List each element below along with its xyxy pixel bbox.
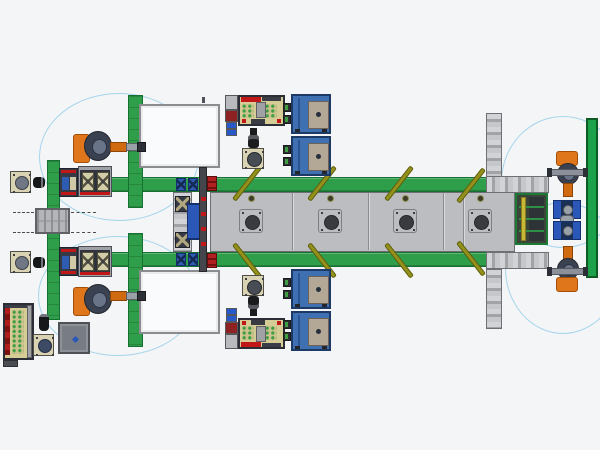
- cluster-blue-block: [62, 177, 69, 190]
- actuator-cylinder-upper: [33, 177, 45, 188]
- pallet-plate-upper-left: [10, 171, 31, 193]
- panel-mark: [242, 119, 246, 123]
- cabinet-blue-cell: [226, 122, 237, 129]
- station-hole: [399, 215, 414, 230]
- station-hole: [324, 215, 339, 230]
- pin-hole: [327, 195, 334, 202]
- cluster-red-strip: [61, 271, 76, 274]
- platform-seam: [443, 193, 445, 250]
- cabinet-red-top: [225, 110, 238, 122]
- robot-bottom-left-arm: [110, 291, 127, 301]
- platform-seam: [368, 193, 370, 250]
- machine-center-hole: [316, 287, 321, 292]
- cabinet-blue-cell: [226, 308, 237, 315]
- pole-clamp-red: [201, 197, 206, 201]
- platform-seam: [292, 193, 294, 250]
- connector-neck: [250, 128, 257, 135]
- machine-panel: [308, 276, 329, 304]
- process-machine-3: [291, 269, 331, 309]
- buffer-platform-lower: [139, 270, 220, 334]
- safety-wall-right: [586, 118, 598, 278]
- chip-grid: [265, 104, 277, 118]
- machine-connector-green: [283, 320, 291, 329]
- fixture-cluster-b-lower: [78, 246, 112, 277]
- chip-grid: [242, 326, 254, 340]
- panel-center-block: [256, 326, 266, 342]
- pole-clamp-red: [201, 227, 206, 231]
- pallet-fixture-blue: [176, 253, 186, 266]
- x-plate: [82, 172, 94, 191]
- cluster-tan-block: [70, 177, 76, 190]
- panel-mark: [277, 119, 281, 123]
- stopper-red-lower: [207, 253, 217, 268]
- cabinet-blue-cell: [226, 129, 237, 136]
- dimension-line-lower-left: [13, 232, 34, 233]
- connector-body: [248, 296, 259, 309]
- cabinet-gray-bottom: [225, 334, 238, 349]
- main-line-platform: [210, 192, 515, 252]
- panel-mark-dark: [251, 320, 265, 325]
- plate-knob: [15, 176, 29, 190]
- fixture-cluster-a-upper: [59, 168, 78, 197]
- platform-seam: [463, 193, 465, 250]
- station-plate: [393, 209, 417, 233]
- machine-connector-green: [283, 332, 291, 341]
- pole-clamp-red: [201, 242, 206, 246]
- crossbar-end: [547, 168, 552, 177]
- box-center-mark: [72, 336, 79, 343]
- station-plate: [239, 209, 263, 233]
- cluster-red-strip: [61, 249, 76, 252]
- machine-panel: [308, 143, 329, 171]
- cabinet-red-bottom: [225, 322, 238, 334]
- elevator-ladder-horizontal-top: [486, 176, 549, 193]
- pcb-panel-left-vertical: [3, 303, 34, 360]
- robot-right-bottom-crossbar: [547, 268, 588, 275]
- robot-right-bottom-base: [556, 277, 578, 292]
- robot-bottom-left-gripper: [137, 291, 146, 301]
- dimension-line-lower-right: [71, 232, 96, 233]
- connector-neck: [250, 309, 257, 316]
- cabinet-blue-cell: [226, 315, 237, 322]
- cluster-red-strip: [80, 192, 110, 195]
- fixture-lens: [247, 152, 262, 167]
- chip-grid: [12, 310, 24, 354]
- fixture-knob: [563, 205, 573, 215]
- panel-red-edge: [5, 308, 10, 355]
- equipment-box: [58, 322, 90, 354]
- robot-bottom-left-body: [84, 284, 112, 314]
- machine-connector-green: [283, 157, 291, 166]
- panel-mark: [277, 321, 281, 325]
- station-hole: [245, 215, 260, 230]
- machine-connector-green: [283, 145, 291, 154]
- factory-layout-canvas: [0, 0, 600, 450]
- chip-grid: [265, 326, 277, 340]
- machine-connector-green: [283, 278, 291, 287]
- camera-fixture-bottom: [242, 275, 264, 296]
- process-machine-2: [291, 136, 331, 176]
- robot-right-top-arm: [563, 183, 573, 197]
- guide-pole: [199, 167, 207, 272]
- cluster-red-strip: [61, 170, 76, 173]
- cable-connector-bottom: [248, 296, 259, 316]
- robot-top-left-body: [84, 131, 112, 161]
- x-plate: [97, 252, 109, 271]
- elevator-ladder-horizontal-bottom: [486, 252, 549, 269]
- conveyor-strip-bottom: [58, 252, 517, 267]
- panel-foot-plate: [3, 360, 18, 367]
- panel-dark-strip: [262, 97, 281, 101]
- plate-knob: [15, 256, 29, 270]
- fixture-cluster-b-upper: [78, 166, 112, 197]
- panel-dark-strip: [262, 343, 281, 347]
- machine-panel: [308, 318, 329, 346]
- chip-grid: [242, 104, 254, 118]
- station-plate: [318, 209, 342, 233]
- cluster-tan-block: [70, 256, 76, 269]
- station-plate: [468, 209, 492, 233]
- robot-cell-fixture-2: [553, 221, 581, 240]
- crossbar-end: [583, 168, 588, 177]
- pole-clamp-red: [201, 212, 206, 216]
- robot-top-left-arm: [110, 142, 127, 152]
- pallet-rack-tray: [515, 193, 548, 245]
- connector-body: [248, 135, 259, 148]
- actuator-cylinder-vertical: [39, 314, 49, 331]
- actuator-cylinder-lower: [33, 257, 45, 268]
- robot-right-top-crossbar: [547, 169, 588, 176]
- cabinet-gray-top: [225, 95, 238, 110]
- pcb-panel-bottom: [238, 318, 285, 349]
- station-hole: [474, 215, 489, 230]
- fixture-lens: [247, 280, 262, 295]
- camera-fixture-bottom-left: [33, 334, 54, 356]
- cluster-blue-block: [62, 256, 69, 269]
- machine-panel: [308, 101, 329, 129]
- fixture-cluster-a-lower: [59, 247, 78, 276]
- pcb-panel-top: [238, 95, 285, 126]
- cluster-red-strip: [80, 272, 110, 275]
- machine-connector-green: [283, 103, 291, 112]
- cable-connector-top: [248, 128, 259, 148]
- buffer-platform-upper: [139, 104, 220, 168]
- machine-center-hole: [316, 154, 321, 159]
- pallet-plate-lower-left: [10, 251, 31, 273]
- panel-center-block: [256, 102, 266, 118]
- fixture-knob: [563, 226, 573, 236]
- dimension-line-upper-left: [13, 212, 34, 213]
- stopper-red-upper: [207, 176, 217, 191]
- x-plate: [97, 172, 109, 191]
- elevator-ladder-vertical-bottom: [486, 269, 502, 329]
- pin-hole: [402, 195, 409, 202]
- pin-hole: [248, 195, 255, 202]
- pallet-fixture-blue: [188, 253, 198, 266]
- panel-red-strip: [241, 342, 261, 347]
- process-machine-1: [291, 94, 331, 134]
- conveyor-strip-top: [58, 177, 517, 192]
- x-plate: [82, 252, 94, 271]
- crossbar-end: [583, 267, 588, 276]
- rack-yellow-rail: [521, 197, 526, 241]
- machine-center-hole: [316, 112, 321, 117]
- pallet-fixture-blue: [176, 178, 186, 191]
- pallet-fixture-blue: [188, 178, 198, 191]
- dimension-line-upper-right: [71, 212, 96, 213]
- process-machine-4: [291, 311, 331, 351]
- pin-hole: [477, 195, 484, 202]
- cluster-red-strip: [61, 192, 76, 195]
- panel-mark: [242, 321, 246, 325]
- lift-frame: [35, 208, 70, 234]
- machine-connector-green: [283, 115, 291, 124]
- machine-center-hole: [316, 329, 321, 334]
- crossbar-end: [547, 267, 552, 276]
- panel-side-bar: [27, 305, 32, 358]
- machine-connector-green: [283, 290, 291, 299]
- label-tick: [202, 97, 205, 103]
- fixture-lens: [38, 339, 52, 353]
- robot-top-left-gripper: [137, 142, 146, 152]
- camera-fixture-top: [242, 148, 264, 169]
- elevator-ladder-vertical-top: [486, 113, 502, 177]
- panel-mark-dark: [251, 119, 265, 124]
